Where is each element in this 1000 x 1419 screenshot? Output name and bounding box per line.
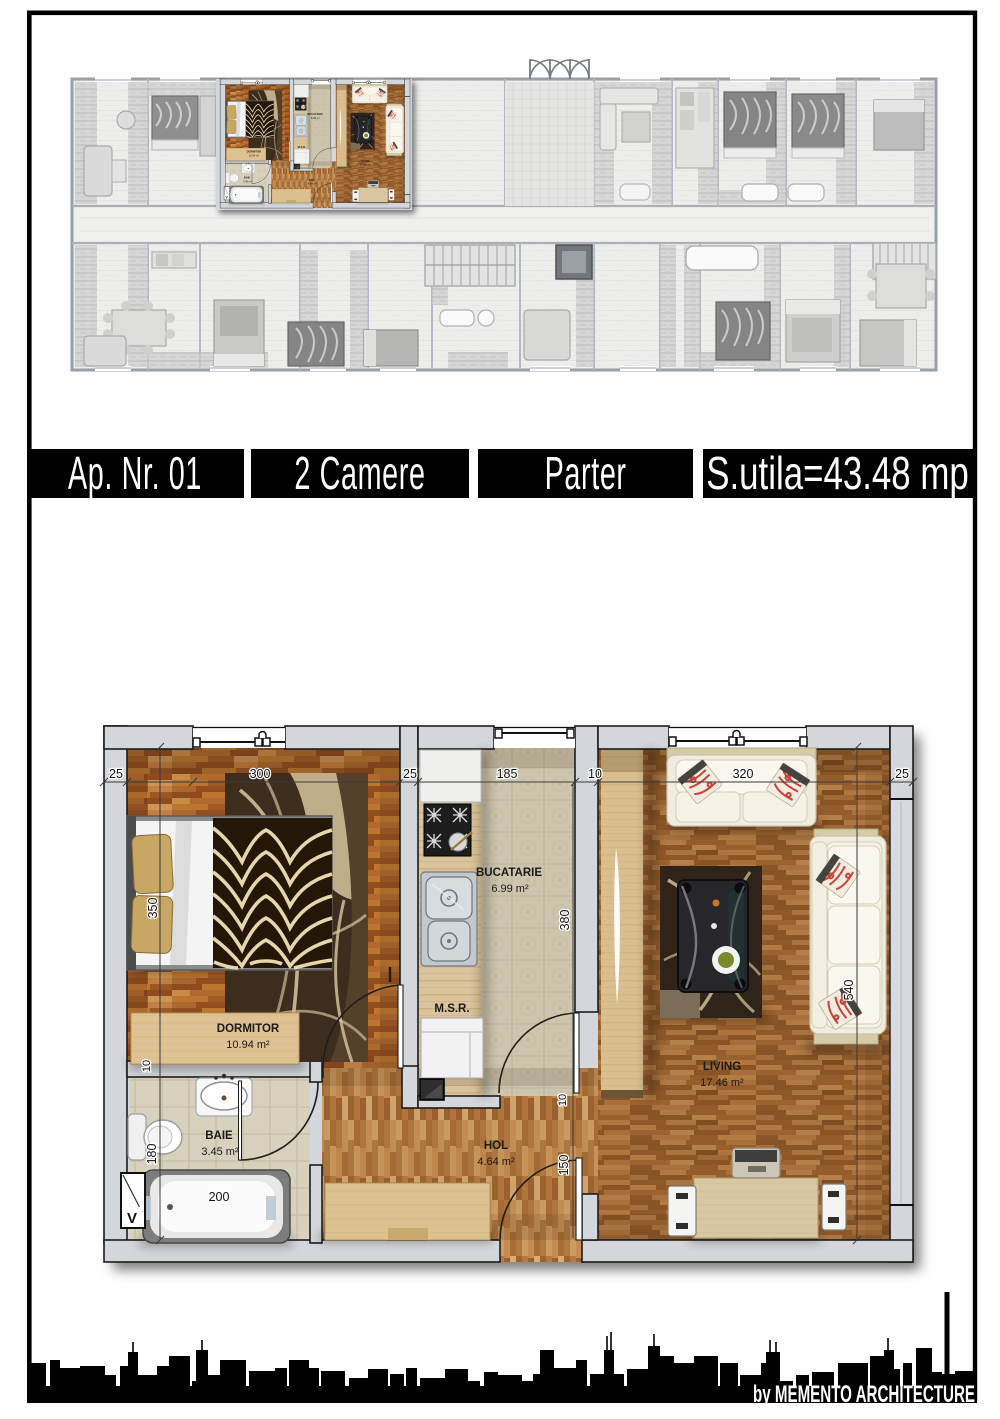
- svg-text:Ap. Nr. 01: Ap. Nr. 01: [68, 448, 202, 500]
- svg-text:BUCATARIE: BUCATARIE: [476, 867, 542, 879]
- svg-text:10.94 m²: 10.94 m²: [226, 1039, 270, 1051]
- svg-text:200: 200: [209, 1190, 230, 1204]
- svg-text:HOL: HOL: [484, 1140, 508, 1152]
- svg-text:10: 10: [557, 1094, 569, 1106]
- svg-text:2 Camere: 2 Camere: [294, 448, 425, 500]
- svg-text:10: 10: [141, 1060, 153, 1072]
- svg-text:320: 320: [733, 767, 754, 781]
- svg-text:BAIE: BAIE: [205, 1130, 233, 1142]
- svg-text:LIVING: LIVING: [703, 1061, 741, 1073]
- svg-text:V: V: [127, 1210, 137, 1227]
- svg-text:6.99 m²: 6.99 m²: [491, 883, 529, 895]
- svg-text:S.utila=43.48 mp: S.utila=43.48 mp: [706, 448, 969, 500]
- svg-text:25: 25: [895, 767, 909, 781]
- svg-text:M.S.R.: M.S.R.: [434, 1003, 469, 1015]
- svg-text:25: 25: [403, 767, 417, 781]
- svg-text:Parter: Parter: [545, 448, 627, 500]
- svg-text:380: 380: [558, 910, 572, 931]
- svg-text:350: 350: [146, 898, 160, 919]
- svg-text:185: 185: [497, 767, 518, 781]
- svg-text:540: 540: [842, 980, 856, 1001]
- svg-text:by MEMENTO ARCHITECTURE: by MEMENTO ARCHITECTURE: [753, 1381, 975, 1408]
- svg-text:300: 300: [250, 767, 271, 781]
- svg-text:150: 150: [557, 1155, 571, 1176]
- svg-text:4.64 m²: 4.64 m²: [477, 1156, 515, 1168]
- svg-text:180: 180: [145, 1144, 159, 1165]
- svg-text:DORMITOR: DORMITOR: [217, 1023, 280, 1035]
- svg-text:17.46 m²: 17.46 m²: [700, 1077, 744, 1089]
- svg-text:25: 25: [109, 767, 123, 781]
- svg-text:3.45 m²: 3.45 m²: [201, 1146, 239, 1158]
- svg-text:10: 10: [588, 767, 602, 781]
